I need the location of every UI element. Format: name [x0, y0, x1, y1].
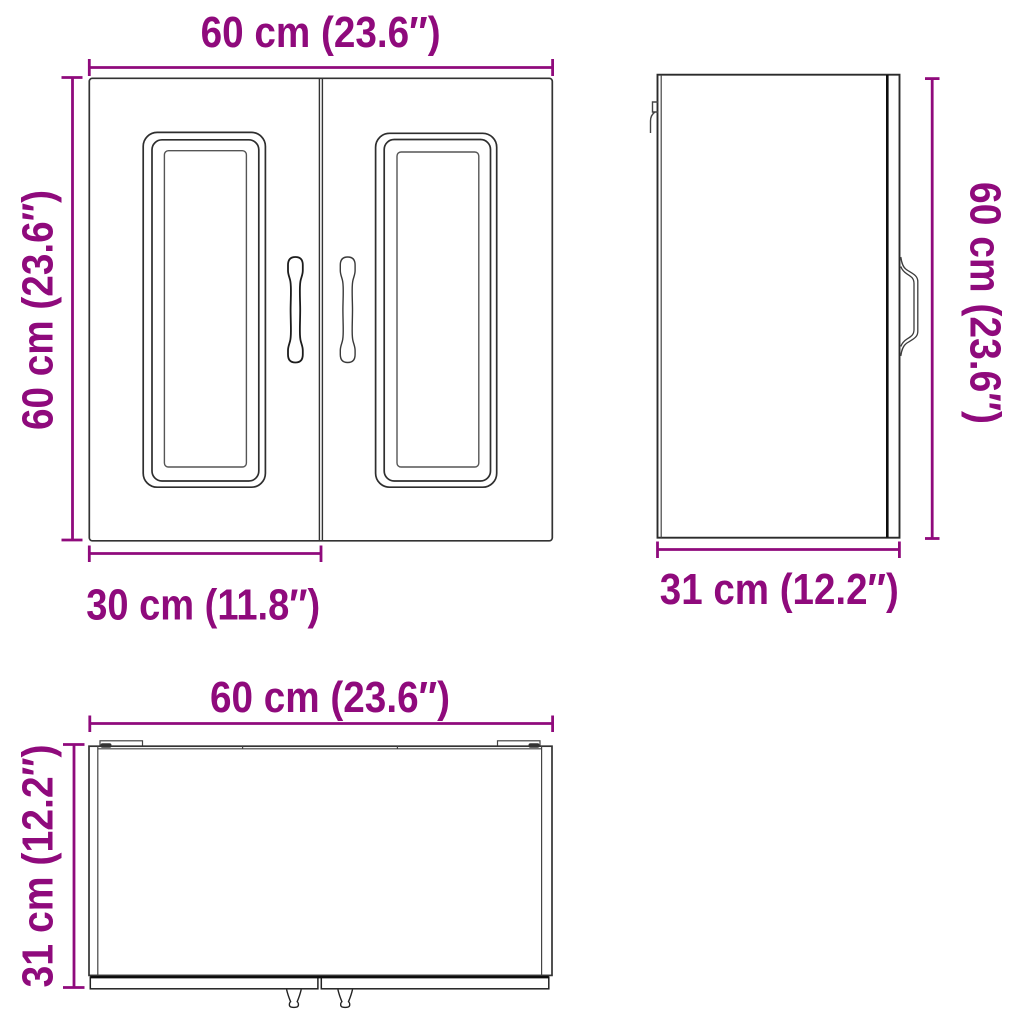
- svg-text:31 cm (12.2″): 31 cm (12.2″): [660, 565, 899, 614]
- svg-text:60 cm (23.6″): 60 cm (23.6″): [201, 8, 441, 57]
- svg-text:60 cm (23.6″): 60 cm (23.6″): [960, 182, 1009, 424]
- svg-text:60 cm (23.6″): 60 cm (23.6″): [210, 673, 450, 722]
- svg-text:30 cm (11.8″): 30 cm (11.8″): [86, 581, 320, 630]
- svg-text:31 cm (12.2″): 31 cm (12.2″): [13, 745, 62, 988]
- svg-text:60 cm (23.6″): 60 cm (23.6″): [13, 190, 62, 430]
